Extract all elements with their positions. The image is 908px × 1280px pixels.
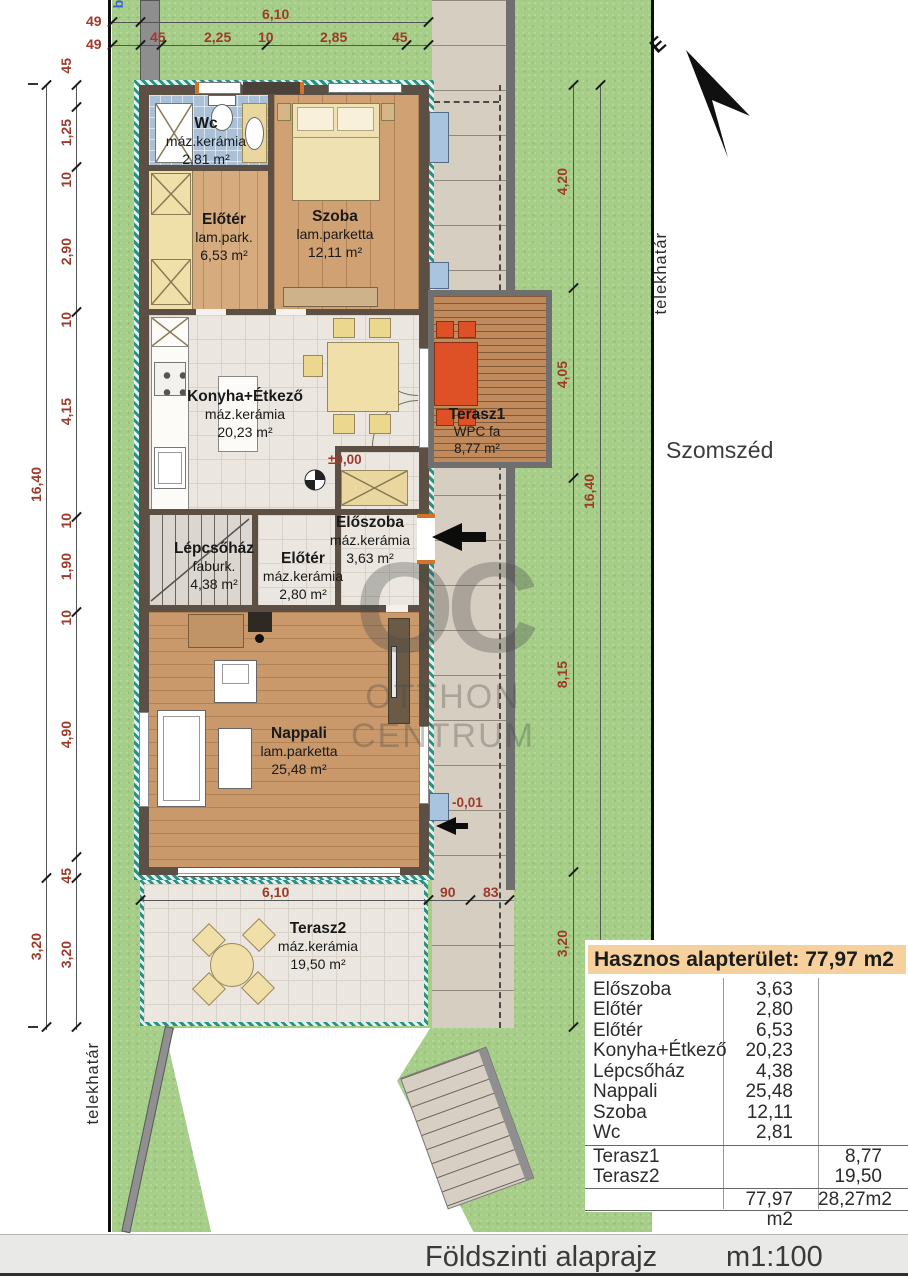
room-name: Terasz2 — [248, 919, 388, 938]
dim-top-seg: 45 — [392, 29, 408, 45]
dim-left-seg: 1,25 — [58, 119, 74, 146]
room-name: Terasz1 — [427, 405, 527, 424]
row-outdoor — [818, 1000, 908, 1020]
dim-left-terrace: 3,20 — [58, 941, 74, 968]
row-indoor: 2,80 — [723, 1000, 818, 1020]
watermark-logo: OC — [338, 542, 548, 676]
dining-table — [327, 342, 399, 412]
room-area: 20,23 m² — [175, 424, 315, 442]
closet — [151, 173, 191, 215]
table-row: Előtér6,53 — [585, 1021, 908, 1041]
row-name: Terasz2 — [585, 1167, 723, 1187]
row-name: Szoba — [585, 1103, 723, 1123]
dim-bottom-total: 6,10 — [262, 884, 289, 900]
stove-pipe — [255, 634, 264, 643]
window-blue — [429, 262, 449, 289]
row-indoor — [723, 1147, 818, 1167]
door-jamb-mark — [195, 82, 199, 94]
sofa-cushions — [163, 716, 200, 801]
row-indoor: 3,63 — [723, 980, 818, 1000]
dim-top-seg: 45 — [150, 29, 166, 45]
level-marker-terrace: -0,01 — [452, 795, 483, 810]
dim-left-seg: 10 — [58, 312, 74, 328]
partition-wall — [268, 95, 274, 309]
dim-right-seg: 4,20 — [554, 168, 570, 195]
plan-scale: m1:100 — [726, 1241, 823, 1274]
row-name: Lépcsőház — [585, 1062, 723, 1082]
dimension-line — [600, 85, 601, 1028]
survey-point-icon — [303, 468, 327, 492]
room-name: Szoba — [275, 207, 395, 226]
room-material: máz.kerámia — [248, 938, 388, 956]
row-outdoor — [818, 980, 908, 1000]
dim-top-seg: 2,85 — [320, 29, 347, 45]
room-material: WPC fa — [427, 424, 527, 441]
area-table-header: Hasznos alapterület: 77,97 m2 — [588, 945, 906, 974]
window-opening — [139, 712, 149, 807]
area-table: Hasznos alapterület: 77,97 m2 Előszoba3,… — [585, 940, 908, 1212]
row-indoor: 6,53 — [723, 1021, 818, 1041]
door-opening — [196, 309, 226, 315]
row-name: Előszoba — [585, 980, 723, 1000]
room-area: 4,38 m² — [164, 576, 264, 594]
dim-left-seg: 10 — [58, 172, 74, 188]
dim-left-total: 16,40 — [28, 467, 44, 502]
row-outdoor — [818, 1103, 908, 1123]
room-area: 8,77 m² — [427, 441, 527, 458]
plan-title: Földszinti alaprajz — [425, 1241, 657, 1274]
pillow — [297, 107, 334, 131]
row-outdoor — [818, 1041, 908, 1061]
table-row: Lépcsőház4,38 — [585, 1062, 908, 1082]
dim-left-seg: 2,90 — [58, 238, 74, 265]
title-bar: Földszinti alaprajz m1:100 — [0, 1234, 908, 1276]
room-name: Lépcsőház — [164, 539, 264, 558]
dimension-line — [573, 85, 574, 1028]
entry-wardrobe — [341, 470, 408, 506]
terrace-chair — [436, 321, 454, 338]
dim-left-terrace-outer: 3,20 — [28, 933, 44, 960]
dim-top-seg: 2,25 — [204, 29, 231, 45]
dimension-end-mark — [28, 83, 38, 85]
dimension-line — [140, 900, 509, 901]
dining-chair — [303, 355, 323, 377]
table-row: Konyha+Étkező20,23 — [585, 1041, 908, 1061]
row-outdoor — [818, 1123, 908, 1143]
property-boundary-left — [108, 0, 111, 1232]
room-area: 6,53 m² — [178, 247, 270, 265]
nightstand — [277, 103, 291, 121]
dim-top-seg: 10 — [258, 29, 274, 45]
dim-bottom-step: 83 — [483, 884, 499, 900]
dim-corner: 49 — [86, 13, 102, 29]
room-name: Előtér — [178, 210, 270, 229]
fireplace-stove — [248, 612, 272, 632]
room-material: máz.kerámia — [158, 133, 254, 151]
sink-basin — [158, 452, 182, 484]
table-row: Szoba12,11 — [585, 1103, 908, 1123]
room-label-eloter-upper: Előtér lam.park. 6,53 m² — [178, 210, 270, 264]
dimension-line — [46, 85, 47, 1030]
closet — [151, 259, 191, 305]
dim-left-seg: 10 — [58, 513, 74, 529]
row-outdoor — [818, 1062, 908, 1082]
neighbor-label: Szomszéd — [666, 437, 773, 464]
dim-left-seg: 10 — [58, 610, 74, 626]
dim-right-total: 16,40 — [581, 474, 597, 509]
boundary-label-left: telekhatár — [84, 1042, 103, 1124]
room-label-konyha: Konyha+Étkező máz.kerámia 20,23 m² — [175, 387, 315, 441]
room-name: Wc — [158, 114, 254, 133]
dining-chair — [369, 414, 391, 434]
window-blue — [429, 112, 449, 163]
row-outdoor — [818, 1082, 908, 1102]
room-material: faburk. — [164, 558, 264, 576]
dim-right-seg: 4,05 — [554, 361, 570, 388]
dim-right-terrace: 3,20 — [554, 930, 570, 957]
szoba-window — [328, 83, 402, 93]
dining-chair — [333, 318, 355, 338]
terrace-table — [434, 342, 478, 406]
wall-niche — [243, 82, 301, 94]
terrace-chair — [458, 321, 476, 338]
sideboard — [188, 614, 244, 648]
dimension-line — [76, 85, 77, 1030]
area-table-rows: Előszoba3,63 Előtér2,80 Előtér6,53 Konyh… — [585, 980, 908, 1144]
row-name: Nappali — [585, 1082, 723, 1102]
room-material: máz.kerámia — [175, 406, 315, 424]
row-name: Terasz1 — [585, 1147, 723, 1167]
row-name: Előtér — [585, 1000, 723, 1020]
armchair-cushion — [222, 664, 249, 684]
room-area: 2,80 m² — [257, 586, 349, 604]
room-area: 12,11 m² — [275, 244, 395, 262]
dim-bottom-step: 90 — [440, 884, 456, 900]
dining-chair — [369, 318, 391, 338]
dim-left-seg: 1,90 — [58, 553, 74, 580]
row-indoor: 20,23 — [723, 1041, 818, 1061]
room-area: 19,50 m² — [248, 956, 388, 974]
sliding-glass-door — [178, 867, 400, 877]
dining-chair — [333, 414, 355, 434]
dim-corner: 49 — [86, 36, 102, 52]
room-label-szoba: Szoba lam.parketta 12,11 m² — [275, 207, 395, 261]
dimension-end-mark — [28, 1026, 38, 1028]
terrace-arrow-icon — [434, 814, 470, 838]
row-indoor: 25,48 — [723, 1082, 818, 1102]
room-area: 2,81 m² — [158, 151, 254, 169]
boundary-label-right: telekhatár — [652, 232, 671, 314]
table-row: Terasz18,77 — [585, 1147, 908, 1167]
row-indoor: 2,81 — [723, 1123, 818, 1143]
row-indoor: 12,11 — [723, 1103, 818, 1123]
dresser — [283, 287, 378, 307]
room-label-terasz1: Terasz1 WPC fa 8,77 m² — [427, 405, 527, 458]
room-name: Előtér — [257, 549, 349, 568]
floor-plan-sheet: ±0,00 -0,01 — [0, 0, 908, 1280]
watermark-line1: OTTHON — [338, 678, 548, 717]
room-material: máz.kerámia — [257, 568, 349, 586]
watermark-line2: CENTRUM — [338, 717, 548, 756]
pillow — [337, 107, 374, 131]
row-outdoor: 8,77 — [818, 1147, 908, 1167]
level-marker-ground: ±0,00 — [328, 452, 362, 467]
dimension-line — [112, 22, 428, 23]
dim-left-seg: 45 — [58, 868, 74, 884]
corner-cabinet — [151, 317, 189, 347]
row-indoor: 4,38 — [723, 1062, 818, 1082]
room-label-terasz2: Terasz2 máz.kerámia 19,50 m² — [248, 919, 388, 973]
row-name: Konyha+Étkező — [585, 1041, 723, 1061]
room-label-wc: Wc máz.kerámia 2,81 m² — [158, 114, 254, 168]
row-indoor — [723, 1167, 818, 1187]
row-name: Előtér — [585, 1021, 723, 1041]
row-outdoor — [818, 1021, 908, 1041]
dim-left-seg: 4,15 — [58, 398, 74, 425]
table-line — [585, 1210, 908, 1211]
room-label-lepcsohaz: Lépcsőház faburk. 4,38 m² — [164, 539, 264, 593]
row-outdoor: 19,50 — [818, 1167, 908, 1187]
room-label-eloter-lower: Előtér máz.kerámia 2,80 m² — [257, 549, 349, 603]
table-row: Wc2,81 — [585, 1123, 908, 1143]
setback-dashed-line-horizontal — [434, 101, 499, 103]
dim-left-seg: 45 — [58, 58, 74, 74]
row-name: Wc — [585, 1123, 723, 1143]
nightstand — [381, 103, 395, 121]
dim-top-total: 6,10 — [262, 6, 289, 22]
blanket-line — [292, 137, 380, 138]
door-jamb-mark — [300, 82, 304, 94]
entry-label-partial: be — [110, 0, 126, 8]
room-name: Konyha+Étkező — [175, 387, 315, 406]
table-total-row: 77,97 m2 28,27m2 — [585, 1190, 908, 1210]
table-row: Előtér2,80 — [585, 1000, 908, 1020]
table-row: Előszoba3,63 — [585, 980, 908, 1000]
watermark-otthon-centrum: OC OTTHON CENTRUM — [338, 542, 548, 756]
room-area: 25,48 m² — [229, 761, 369, 779]
table-row: Nappali25,48 — [585, 1082, 908, 1102]
area-table-terrace-rows: Terasz18,77 Terasz219,50 — [585, 1147, 908, 1188]
door-opening — [276, 309, 306, 315]
room-material: lam.parketta — [275, 226, 395, 244]
room-material: lam.park. — [178, 229, 270, 247]
dim-right-seg: 8,15 — [554, 661, 570, 688]
entry-mat — [197, 82, 241, 94]
room-name: Előszoba — [320, 513, 420, 532]
table-row: Terasz219,50 — [585, 1167, 908, 1187]
dim-left-seg: 4,90 — [58, 721, 74, 748]
